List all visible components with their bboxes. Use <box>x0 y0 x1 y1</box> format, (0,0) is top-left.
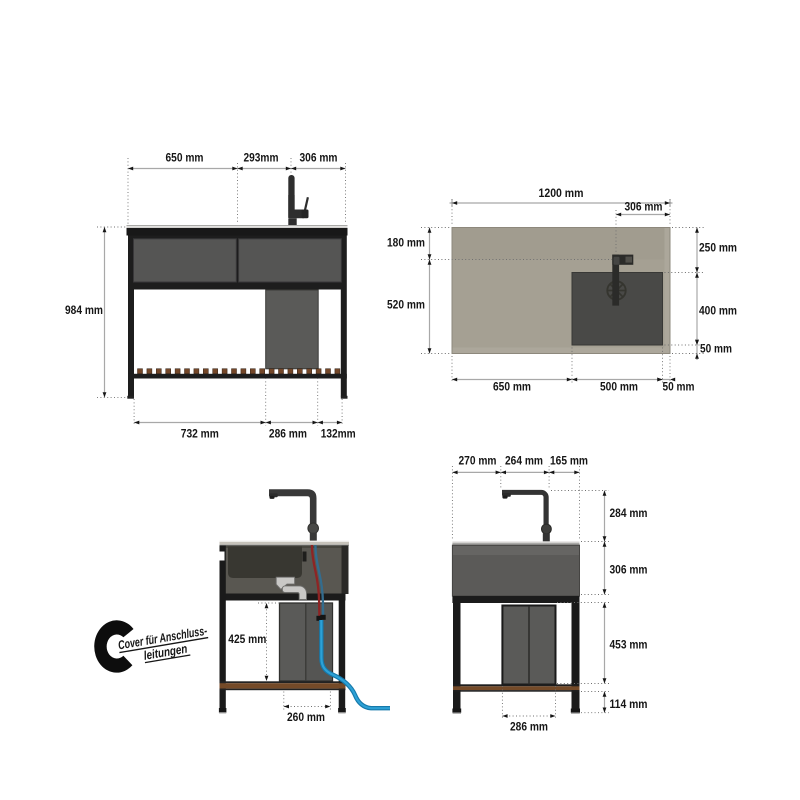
svg-text:650 mm: 650 mm <box>493 380 531 394</box>
svg-text:400 mm: 400 mm <box>699 304 737 318</box>
svg-text:165 mm: 165 mm <box>550 454 588 468</box>
svg-text:286 mm: 286 mm <box>269 427 307 441</box>
svg-text:50 mm: 50 mm <box>663 380 695 394</box>
svg-text:114 mm: 114 mm <box>610 697 648 711</box>
svg-text:306 mm: 306 mm <box>610 563 648 577</box>
svg-text:264 mm: 264 mm <box>505 454 543 468</box>
svg-text:520 mm: 520 mm <box>387 298 425 312</box>
svg-text:425 mm: 425 mm <box>228 632 266 646</box>
svg-text:132mm: 132mm <box>321 427 356 441</box>
svg-text:180 mm: 180 mm <box>387 235 425 249</box>
svg-text:1200 mm: 1200 mm <box>539 186 584 200</box>
svg-text:293mm: 293mm <box>244 151 279 165</box>
svg-text:306 mm: 306 mm <box>300 151 338 165</box>
svg-text:650 mm: 650 mm <box>166 151 204 165</box>
svg-text:250 mm: 250 mm <box>699 241 737 255</box>
svg-text:50 mm: 50 mm <box>700 341 732 355</box>
svg-text:284 mm: 284 mm <box>610 506 648 520</box>
svg-text:500 mm: 500 mm <box>600 380 638 394</box>
svg-text:260 mm: 260 mm <box>287 710 325 724</box>
svg-text:306 mm: 306 mm <box>625 200 663 214</box>
svg-text:732 mm: 732 mm <box>181 427 219 441</box>
svg-text:270 mm: 270 mm <box>459 454 497 468</box>
svg-text:984 mm: 984 mm <box>65 303 103 317</box>
svg-text:453 mm: 453 mm <box>610 638 648 652</box>
svg-text:286 mm: 286 mm <box>510 720 548 734</box>
